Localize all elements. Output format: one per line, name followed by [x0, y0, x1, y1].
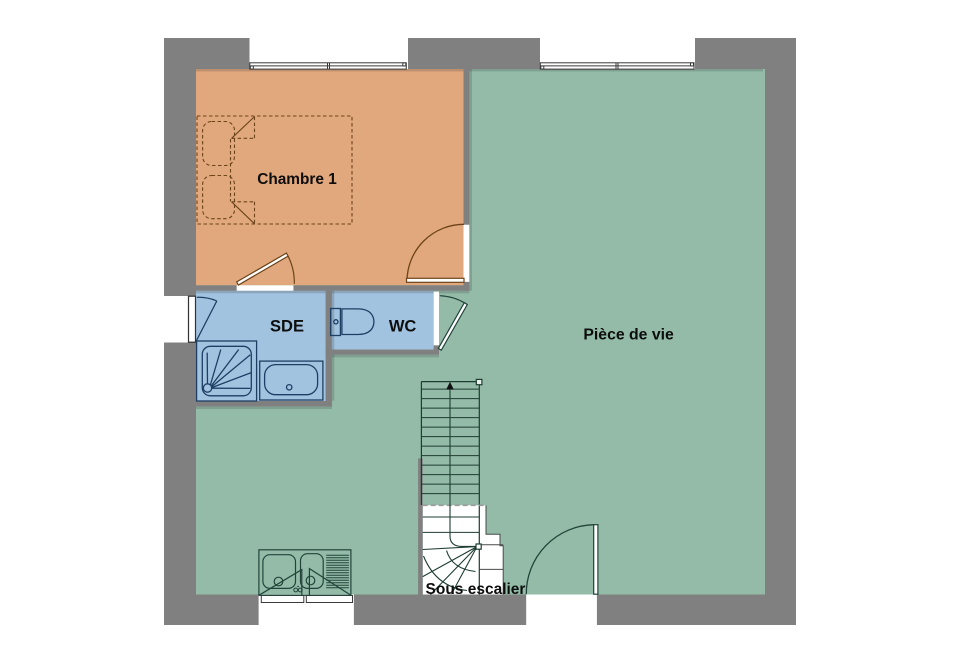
svg-text:SDE: SDE — [270, 318, 304, 336]
svg-text:Chambre 1: Chambre 1 — [257, 171, 337, 188]
svg-text:Sous escalier: Sous escalier — [426, 581, 526, 598]
svg-text:WC: WC — [389, 318, 417, 336]
svg-text:Pièce de vie: Pièce de vie — [583, 327, 674, 344]
